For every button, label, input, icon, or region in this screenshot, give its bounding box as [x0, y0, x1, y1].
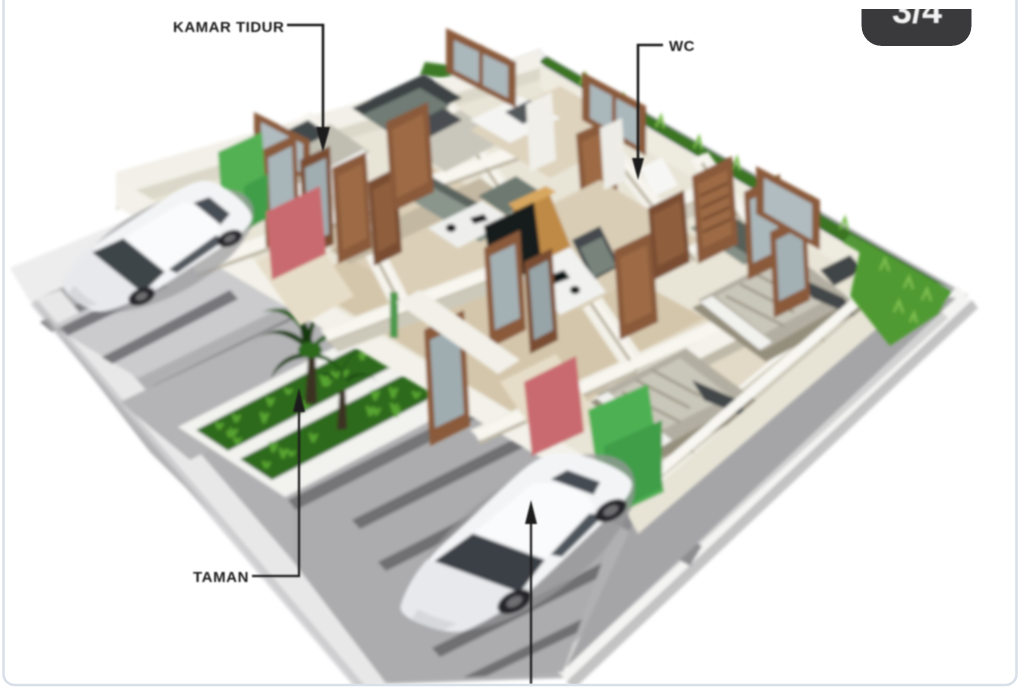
- svg-text:KAMAR TIDUR: KAMAR TIDUR: [173, 19, 284, 36]
- svg-text:WC: WC: [669, 38, 695, 55]
- svg-text:TAMAN: TAMAN: [193, 569, 249, 586]
